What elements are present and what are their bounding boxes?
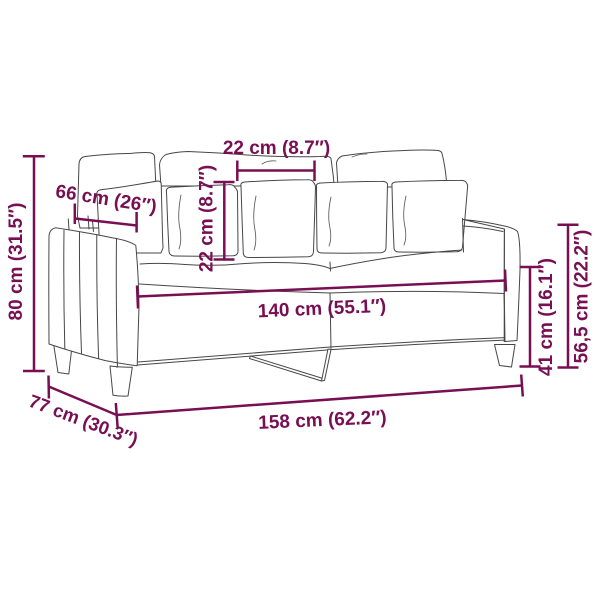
svg-text:22 cm (8.7″): 22 cm (8.7″) [223,138,330,159]
svg-text:80 cm (31.5″): 80 cm (31.5″) [6,203,27,321]
svg-text:56,5 cm (22.2″): 56,5 cm (22.2″) [572,230,593,364]
svg-text:22 cm (8.7″): 22 cm (8.7″) [197,165,218,272]
svg-text:41 cm (16.1″): 41 cm (16.1″) [536,258,557,376]
